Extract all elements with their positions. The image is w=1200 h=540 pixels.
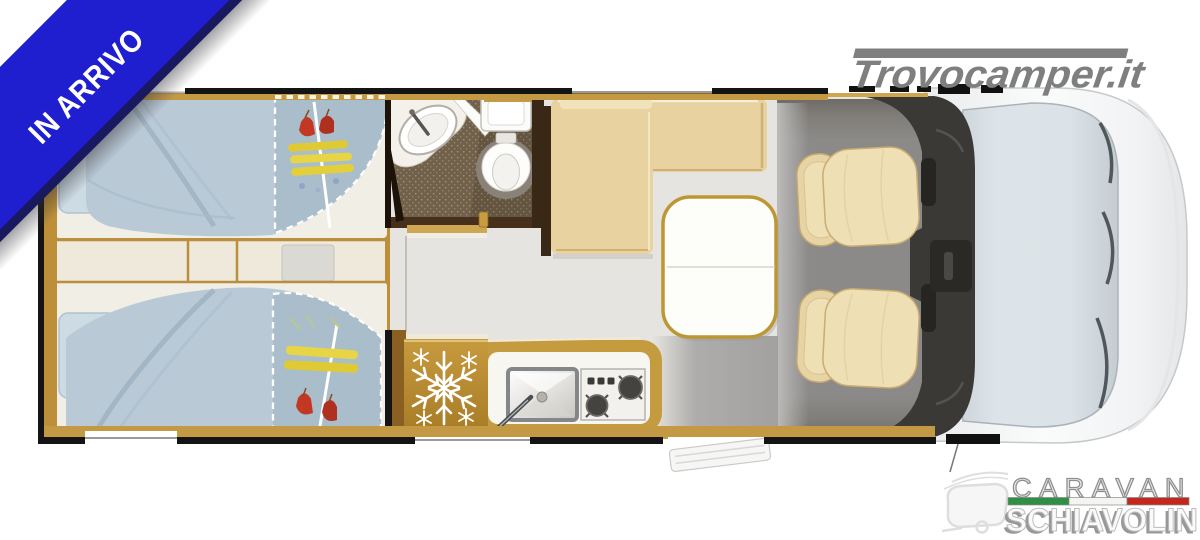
svg-text:SCHIAVOLIN: SCHIAVOLIN: [1006, 502, 1198, 538]
svg-text:Trovocamper.it: Trovocamper.it: [849, 54, 1149, 97]
